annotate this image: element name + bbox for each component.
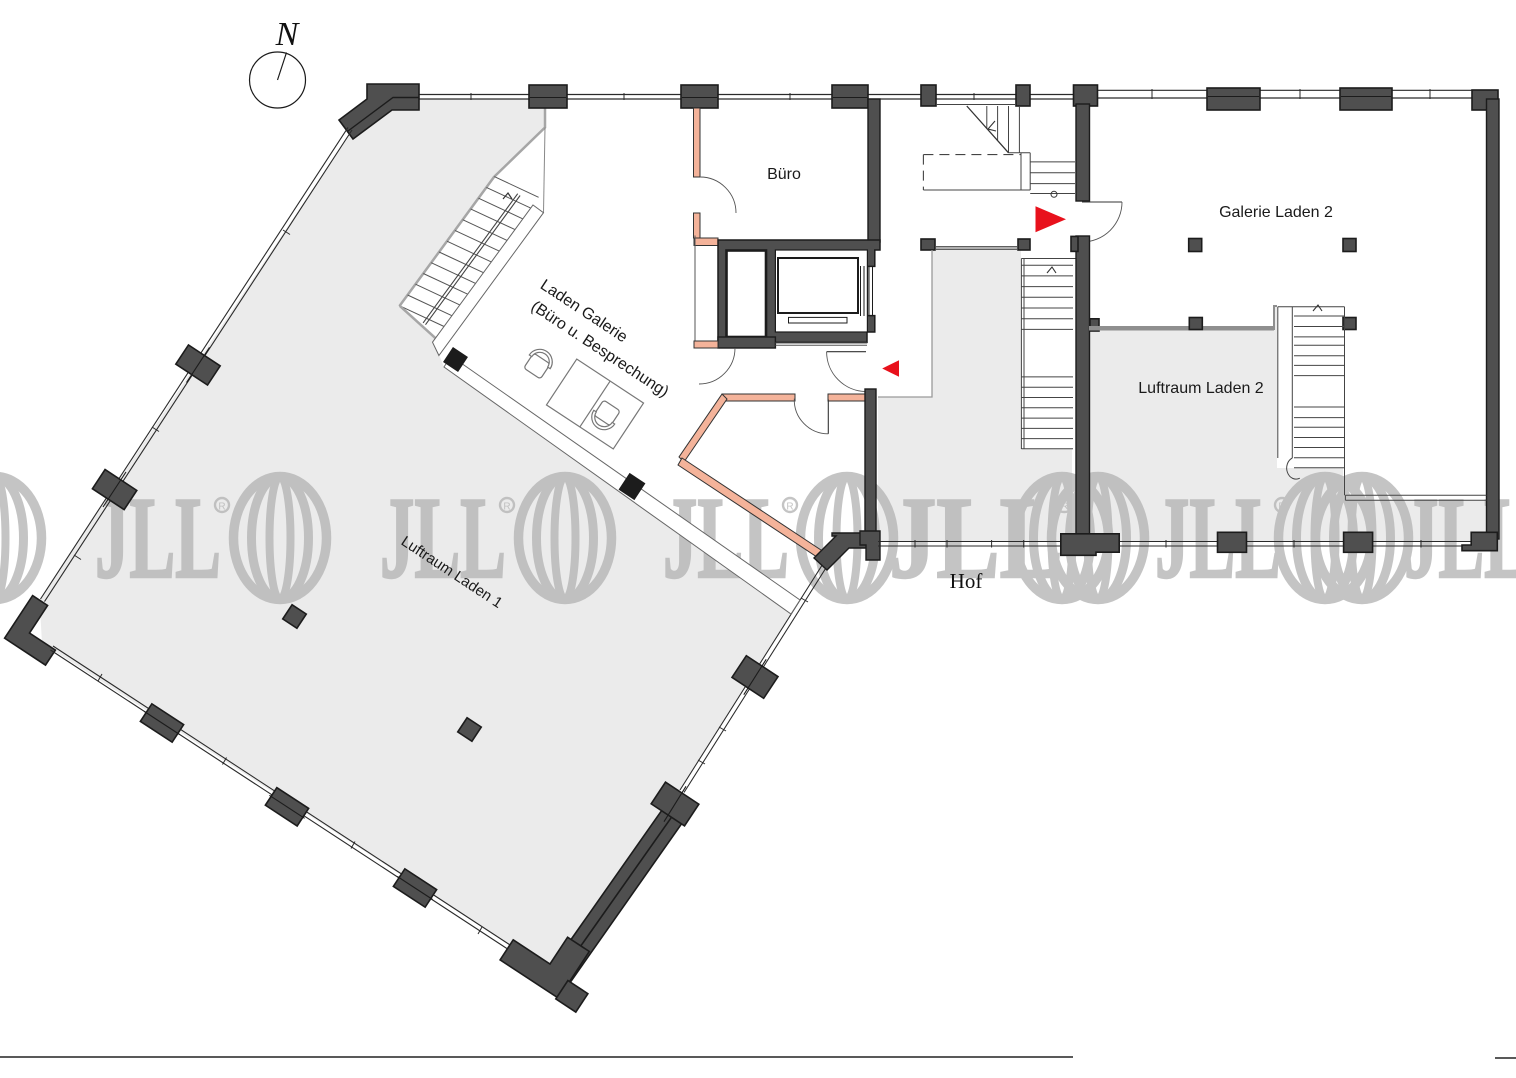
svg-text:N: N [275,16,301,53]
svg-text:Luftraum Laden 2: Luftraum Laden 2 [1138,380,1264,397]
svg-text:Galerie Laden 2: Galerie Laden 2 [1219,204,1333,221]
svg-text:Hof: Hof [950,569,983,593]
svg-text:Büro: Büro [767,166,801,183]
